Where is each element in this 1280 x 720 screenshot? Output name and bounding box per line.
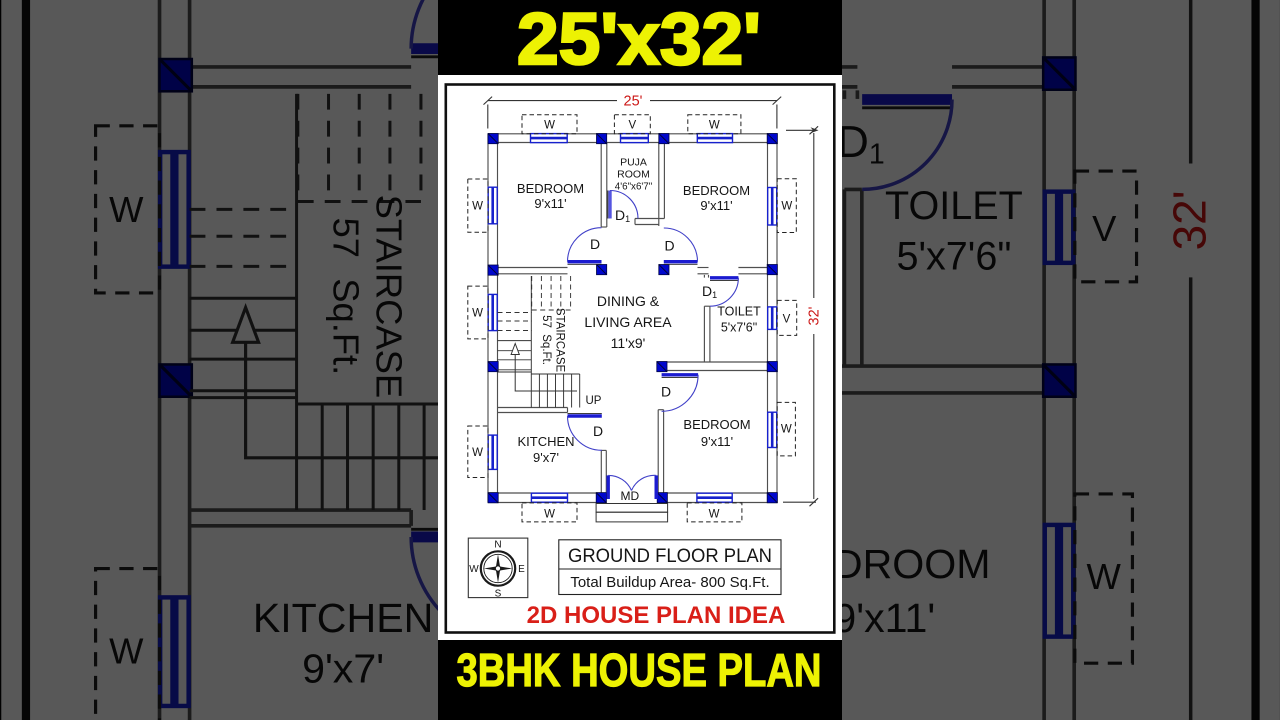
svg-text:3BHK HOUSE PLAN: 3BHK HOUSE PLAN	[457, 644, 822, 696]
svg-text:25'x32': 25'x32'	[517, 0, 761, 80]
